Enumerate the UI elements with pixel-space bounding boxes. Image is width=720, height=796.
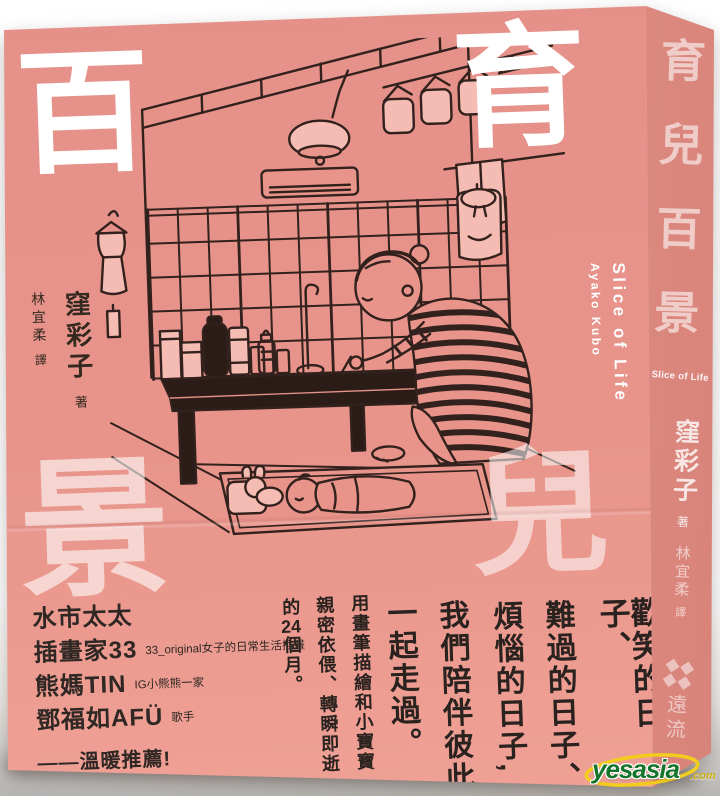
english-title: Slice of Life	[608, 262, 630, 403]
ceiling-lamp	[287, 71, 351, 166]
title-char-jing: 景	[17, 452, 172, 607]
spine-title-char: 兒	[658, 122, 704, 168]
translator-name: 林宜柔譯	[28, 291, 52, 410]
book-3d: 百 育 兒 景 窪彩子著 林宜柔譯 Slice of Life Ayako Ku…	[0, 0, 720, 796]
mother-figure	[337, 241, 537, 467]
author-role: 著	[73, 395, 88, 409]
yesasia-watermark: yesasia.com	[582, 748, 720, 794]
tagline-col-3: 煩惱的日子,	[489, 600, 525, 774]
author-name: 窪彩子著	[58, 290, 99, 409]
title-char-bai: 百	[14, 45, 153, 184]
spine-title-char: 百	[656, 206, 702, 252]
recommenders: 水市太太 插畫家3333_original女子的日常生活插畫 熊媽TINIG小熊…	[32, 596, 309, 776]
watermark-suffix: .com	[690, 770, 716, 782]
spine-translator: 林宜柔譯	[669, 545, 693, 621]
recommender-name: 插畫家33	[33, 636, 138, 667]
hanging-dress	[96, 211, 130, 338]
spine-title-char: 景	[654, 290, 700, 336]
publisher-logo-mark	[663, 658, 693, 688]
recommender-name: 熊媽TIN	[34, 671, 127, 701]
recommend-line: ——溫暖推薦!	[37, 737, 309, 775]
title-char-yu: 育	[450, 19, 589, 158]
sleeping-baby	[220, 458, 497, 535]
author-name-text: 窪彩子	[61, 290, 94, 384]
spine-author-text: 窪彩子	[669, 418, 700, 506]
recommender-row: 鄧福如AFÜ歌手	[36, 697, 308, 736]
recommender-row: 插畫家3333_original女子的日常生活插畫	[33, 630, 305, 669]
book-front-cover: 百 育 兒 景 窪彩子著 林宜柔譯 Slice of Life Ayako Ku…	[0, 0, 720, 796]
recommender-row: 熊媽TINIG小熊熊一家	[34, 663, 306, 702]
watermark-brand: yesasia	[592, 754, 679, 785]
air-conditioner	[261, 167, 358, 197]
publisher-logo: 遠流	[660, 660, 693, 744]
recommender-name: 鄧福如AFÜ	[36, 703, 164, 734]
publisher-name: 遠流	[660, 693, 692, 744]
translator-role: 譯	[33, 353, 47, 365]
tagline-col-7: 親密依偎、轉瞬即逝	[315, 595, 339, 774]
recommender-note: IG小熊熊一家	[134, 677, 204, 691]
spine-author-role: 著	[675, 515, 689, 527]
english-author: Ayako Kubo	[588, 263, 604, 404]
english-subtitle-block: Slice of Life Ayako Kubo	[588, 262, 630, 404]
spine-author: 窪彩子著	[664, 418, 704, 528]
author-credit: 窪彩子著 林宜柔譯	[28, 290, 99, 410]
spine-english-subtitle: Slice of Life	[651, 369, 716, 384]
spine-translator-text: 林宜柔	[672, 545, 691, 600]
book-product-photo: 百 育 兒 景 窪彩子著 林宜柔譯 Slice of Life Ayako Ku…	[0, 0, 720, 796]
tagline-col-4: 我們陪伴彼此	[435, 599, 472, 795]
recommender-note: 歌手	[171, 711, 194, 724]
translator-name-text: 林宜柔	[30, 291, 48, 346]
spine-title-char: 育	[660, 38, 706, 84]
spine-translator-role: 譯	[673, 606, 685, 620]
hanging-hoodie	[457, 183, 503, 260]
recommender-name: 水市太太	[32, 603, 133, 633]
tagline-col-2: 難過的日子、	[541, 599, 578, 795]
recommender-note: 33_original女子的日常生活插畫	[145, 639, 305, 657]
title-char-er: 兒	[469, 442, 612, 585]
spine-title: 育 兒 百 景	[650, 38, 710, 336]
tagline-col-6: 用畫筆描繪和小寶寶	[350, 593, 374, 772]
tagline-col-5: 一起走過。	[383, 597, 419, 760]
